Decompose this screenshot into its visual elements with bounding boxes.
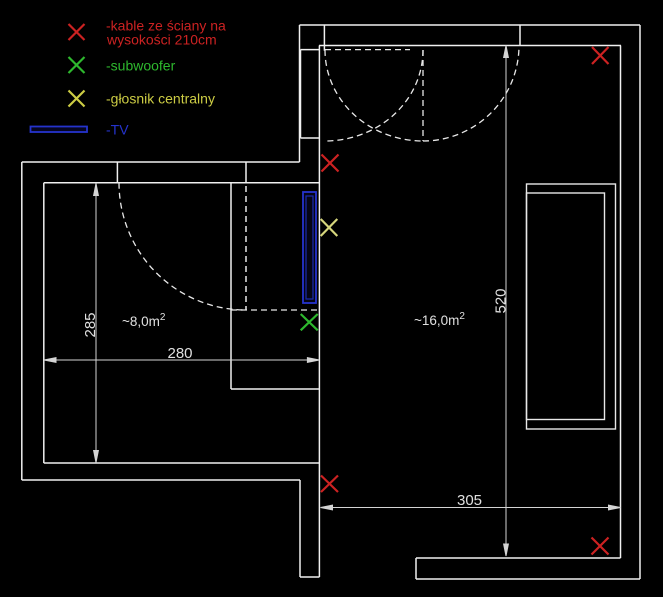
svg-text:~8,0m2: ~8,0m2: [122, 312, 166, 329]
svg-text:280: 280: [168, 345, 193, 362]
svg-text:-subwoofer: -subwoofer: [106, 58, 176, 74]
svg-text:305: 305: [457, 492, 482, 509]
svg-text:~16,0m2: ~16,0m2: [414, 311, 465, 328]
svg-text:520: 520: [493, 288, 510, 313]
svg-text:-głosnik centralny: -głosnik centralny: [106, 91, 215, 107]
svg-text:wysokości 210cm: wysokości 210cm: [106, 32, 217, 48]
svg-text:-TV: -TV: [106, 122, 129, 138]
svg-text:285: 285: [82, 312, 99, 337]
